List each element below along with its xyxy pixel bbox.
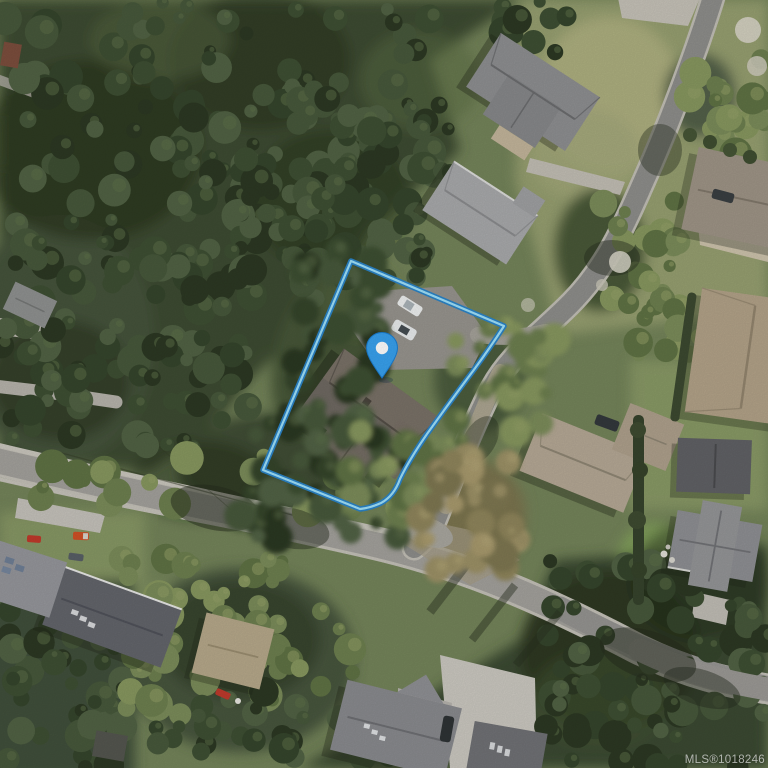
photo-grain xyxy=(0,0,768,768)
map-scene xyxy=(0,0,768,768)
satellite-map-canvas[interactable]: MLS®1018246 xyxy=(0,0,768,768)
